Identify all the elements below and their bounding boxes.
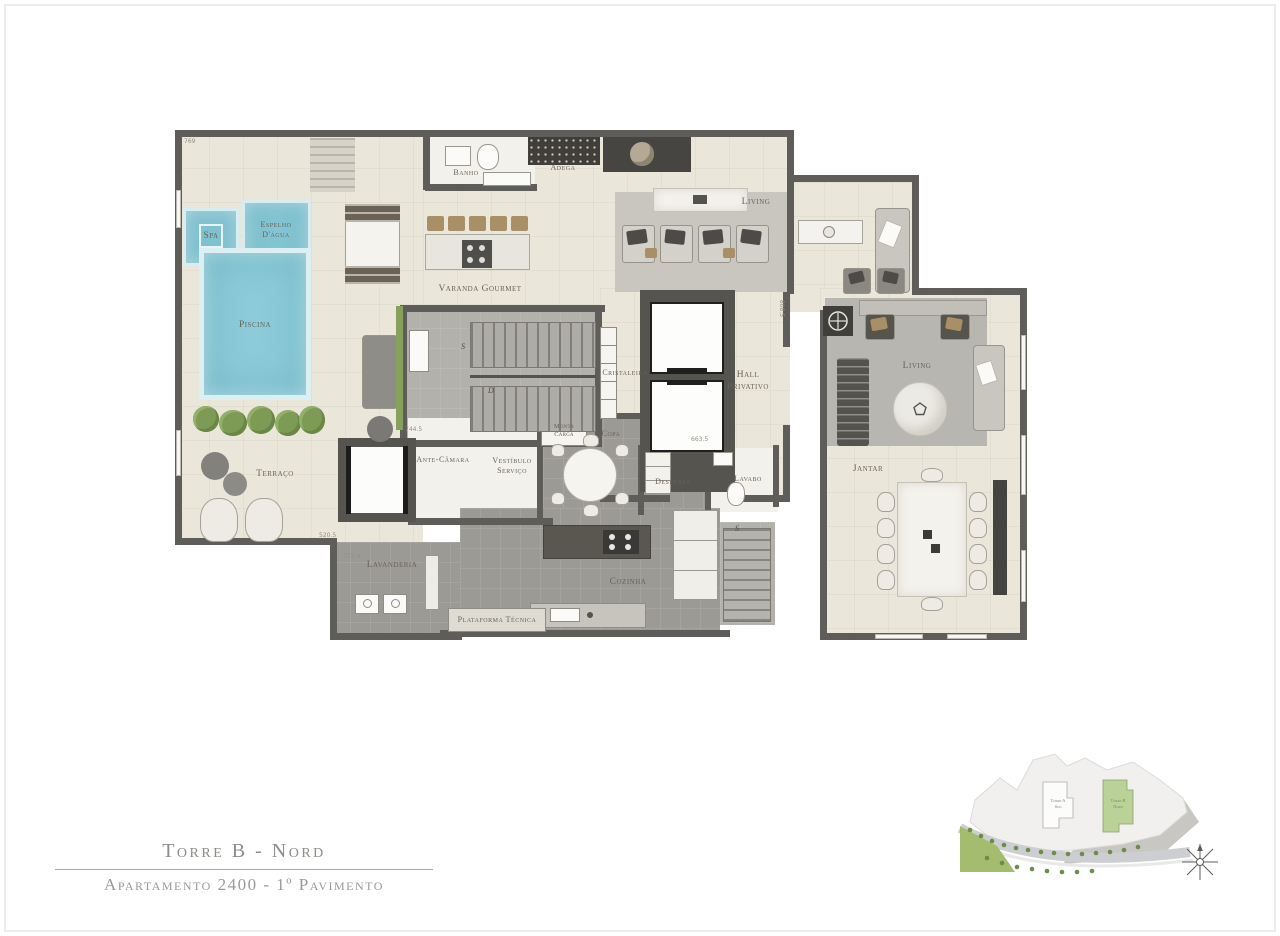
label-cozinha: Cozinha: [610, 577, 647, 589]
floorplan-page: { "titles": { "tower": "Torre B - Nord",…: [0, 0, 1280, 936]
varanda-stool-5: [511, 216, 528, 231]
terrace-planter-strip: [396, 306, 403, 430]
window-right-2: [1021, 435, 1026, 495]
terrace-side-table: [367, 416, 393, 442]
label-terraco: Terraço: [256, 469, 294, 481]
label-cristaleira: Cristaleira: [602, 368, 647, 378]
label-copa: Copa: [602, 429, 621, 439]
jantar-chair-bottom: [921, 597, 943, 611]
label-lavabo: Lavabo: [734, 474, 762, 484]
jantar-decor-1: [923, 530, 932, 539]
site-tower-a-label-2: Sud: [1055, 804, 1063, 809]
label-plataforma-tecnica: Plataforma Técnica: [458, 615, 537, 625]
kitchen-cabinet-line-2: [673, 570, 718, 571]
cristaleira-line-3: [600, 381, 617, 382]
label-jantar: Jantar: [853, 464, 883, 476]
lavabo-toilet: [727, 482, 745, 506]
stair-window-panel: [409, 330, 429, 372]
dim-808-5: 808.5: [778, 300, 785, 317]
window-right-1: [1021, 335, 1026, 390]
wall-ante-bottom: [408, 518, 553, 525]
wall-right-living-left: [820, 310, 827, 640]
jantar-chair-l1: [877, 492, 895, 512]
dim-520-5: 520.5: [319, 532, 336, 539]
wall-bottom-right: [820, 633, 1027, 640]
elevator-2-door: [667, 380, 707, 385]
wall-upper-room-top: [787, 175, 919, 182]
pentagon-icon: [913, 402, 927, 416]
elevator-1: [650, 302, 724, 374]
jantar-decor-2: [931, 544, 940, 553]
varanda-stool-4: [490, 216, 507, 231]
label-hall-privativo: Hall Privativo: [727, 370, 769, 394]
label-banho: Banho: [453, 168, 478, 178]
door-bottom-2: [947, 634, 987, 639]
living-cushion-4: [740, 229, 762, 246]
site-tower-a-label-1: Torre A: [1051, 798, 1067, 803]
fan-icon: [827, 310, 849, 332]
label-living-right: Living: [903, 361, 932, 373]
plant-5: [299, 406, 325, 434]
terrace-table-2: [223, 472, 247, 496]
jantar-chair-l4: [877, 570, 895, 590]
jantar-chair-r1: [969, 492, 987, 512]
terrace-chair-1: [200, 498, 238, 542]
label-ante-camara: Ante-Câmara: [416, 455, 469, 465]
site-plan: Torre A Sud Torre B Nord: [955, 740, 1210, 910]
window-left-1: [176, 190, 181, 228]
cristaleira-line-4: [600, 399, 617, 400]
jantar-chair-r2: [969, 518, 987, 538]
despensa-shelves: [645, 452, 671, 494]
wall-upper-room-right: [912, 175, 919, 295]
grill-burner-1: [467, 245, 473, 251]
jantar-chair-l3: [877, 544, 895, 564]
cristaleira-line-2: [600, 363, 617, 364]
label-despensa: Despensa: [655, 477, 691, 487]
living-throw-2: [723, 248, 735, 258]
terrace-steps: [310, 138, 355, 192]
kitchen-cabinets: [673, 510, 718, 600]
label-varanda-gourmet: Varanda Gourmet: [438, 284, 521, 296]
stair-flight-up: [470, 322, 596, 368]
door-bottom-1: [875, 634, 923, 639]
label-adega: Adega: [551, 163, 576, 173]
cooktop-burner-1: [609, 534, 615, 540]
elevator-2: [650, 380, 724, 452]
right-living-sofa: [973, 345, 1005, 431]
despensa-shelf-line-1: [645, 466, 671, 467]
kitchen-cabinet-line-1: [673, 540, 718, 541]
kitchen-stair-flight: [723, 528, 771, 622]
jantar-chair-r3: [969, 544, 987, 564]
site-tower-b-label-1: Torre B: [1111, 798, 1126, 803]
wall-stair-top: [400, 305, 605, 312]
right-living-throw-2: [945, 317, 963, 332]
copa-chair-5: [551, 492, 565, 505]
dim-769: 769: [184, 138, 195, 145]
cooktop-burner-3: [609, 544, 615, 550]
apartment-title: Apartamento 2400 - 1º Pavimento: [55, 875, 433, 895]
cooktop-burner-2: [625, 534, 631, 540]
wall-top: [175, 130, 793, 137]
copa-chair-3: [551, 444, 565, 457]
stair-mark-down: D: [488, 386, 494, 395]
lavabo-sink: [713, 452, 733, 466]
right-living-slat-bench: [837, 358, 869, 446]
service-elevator-cab: [346, 446, 408, 514]
wall-banho-left: [423, 130, 430, 190]
label-espelho-dagua: Espelho D'água: [260, 220, 291, 240]
stair-mark-up: S: [461, 342, 465, 351]
dim-772-4: 772.4: [343, 553, 360, 560]
label-monta-carga: Monta Carga: [554, 423, 574, 439]
cooktop-burner-4: [625, 544, 631, 550]
varanda-stool-3: [469, 216, 486, 231]
jantar-chair-r4: [969, 570, 987, 590]
copa-chair-2: [583, 504, 599, 517]
site-tower-b-label-2: Nord: [1113, 804, 1123, 809]
wall-right-living-top: [915, 288, 1027, 295]
varanda-stool-1: [427, 216, 444, 231]
lavanderia-counter: [425, 555, 439, 610]
wall-hall-right-2: [783, 425, 790, 502]
window-right-3: [1021, 550, 1026, 602]
living-cushion-2: [664, 229, 685, 245]
grill-burner-2: [479, 245, 485, 251]
plant-4: [275, 410, 301, 436]
kitchen-sink: [550, 608, 580, 622]
compass-icon: [1180, 842, 1220, 882]
living-console-item: [693, 195, 707, 204]
label-spa: Spa: [203, 231, 218, 243]
plant-3: [247, 406, 275, 434]
terrace-lounge-sofa: [362, 335, 398, 409]
varanda-stool-2: [448, 216, 465, 231]
wall-lavanderia-left: [330, 542, 337, 640]
title-block: Torre B - Nord Apartamento 2400 - 1º Pav…: [55, 840, 433, 895]
window-left-2: [176, 430, 181, 476]
label-piscina: Piscina: [239, 320, 271, 332]
copa-chair-6: [615, 492, 629, 505]
plant-1: [193, 406, 219, 432]
service-elevator-door-l: [346, 446, 351, 514]
varanda-grill: [462, 240, 492, 268]
living-cushion-3: [702, 229, 723, 245]
jantar-table: [897, 482, 967, 597]
terrace-chair-2: [245, 498, 283, 542]
plant-2: [219, 410, 247, 436]
dim-744-5: 744.5: [405, 426, 422, 433]
kitchen-faucet: [587, 612, 593, 618]
media-wall-art: [630, 142, 654, 166]
living-throw-1: [645, 248, 657, 258]
copa-chair-1: [583, 434, 599, 447]
cristaleira-line-1: [600, 345, 617, 346]
title-divider: [55, 869, 433, 870]
washer-door: [363, 599, 372, 608]
dim-663-5: 663.5: [691, 436, 708, 443]
stair-rail: [470, 375, 596, 378]
tower-title: Torre B - Nord: [55, 840, 433, 863]
label-living-main: Living: [742, 197, 771, 209]
kitchen-cooktop: [603, 530, 639, 554]
dryer-door: [391, 599, 400, 608]
living-cushion-1: [626, 229, 648, 246]
banho-counter: [483, 172, 531, 186]
label-vestibulo-servico: Vestíbulo Serviço: [492, 456, 531, 476]
jantar-chair-l2: [877, 518, 895, 538]
jantar-tv-panel: [993, 480, 1007, 595]
wall-hall-bottom-1: [600, 495, 670, 502]
label-lavanderia: Lavanderia: [367, 560, 418, 572]
stair-mark-up-2: S: [735, 524, 739, 533]
banho-toilet: [477, 144, 499, 170]
jantar-chair-top: [921, 468, 943, 482]
banho-sink: [445, 146, 471, 166]
grill-burner-3: [467, 257, 473, 263]
terrace-console-top: [345, 204, 400, 222]
grill-burner-4: [479, 257, 485, 263]
adega-wine-rack: [528, 137, 600, 165]
terrace-console-bottom: [345, 266, 400, 284]
elevator-1-door: [667, 368, 707, 373]
copa-table: [563, 448, 617, 502]
upper-room-sink: [823, 226, 835, 238]
copa-chair-4: [615, 444, 629, 457]
service-elevator-door-r: [403, 446, 408, 514]
wall-upper-room-left: [787, 182, 794, 294]
floorplan: Spa Espelho D'água Piscina Terraço Banho…: [175, 130, 1027, 642]
